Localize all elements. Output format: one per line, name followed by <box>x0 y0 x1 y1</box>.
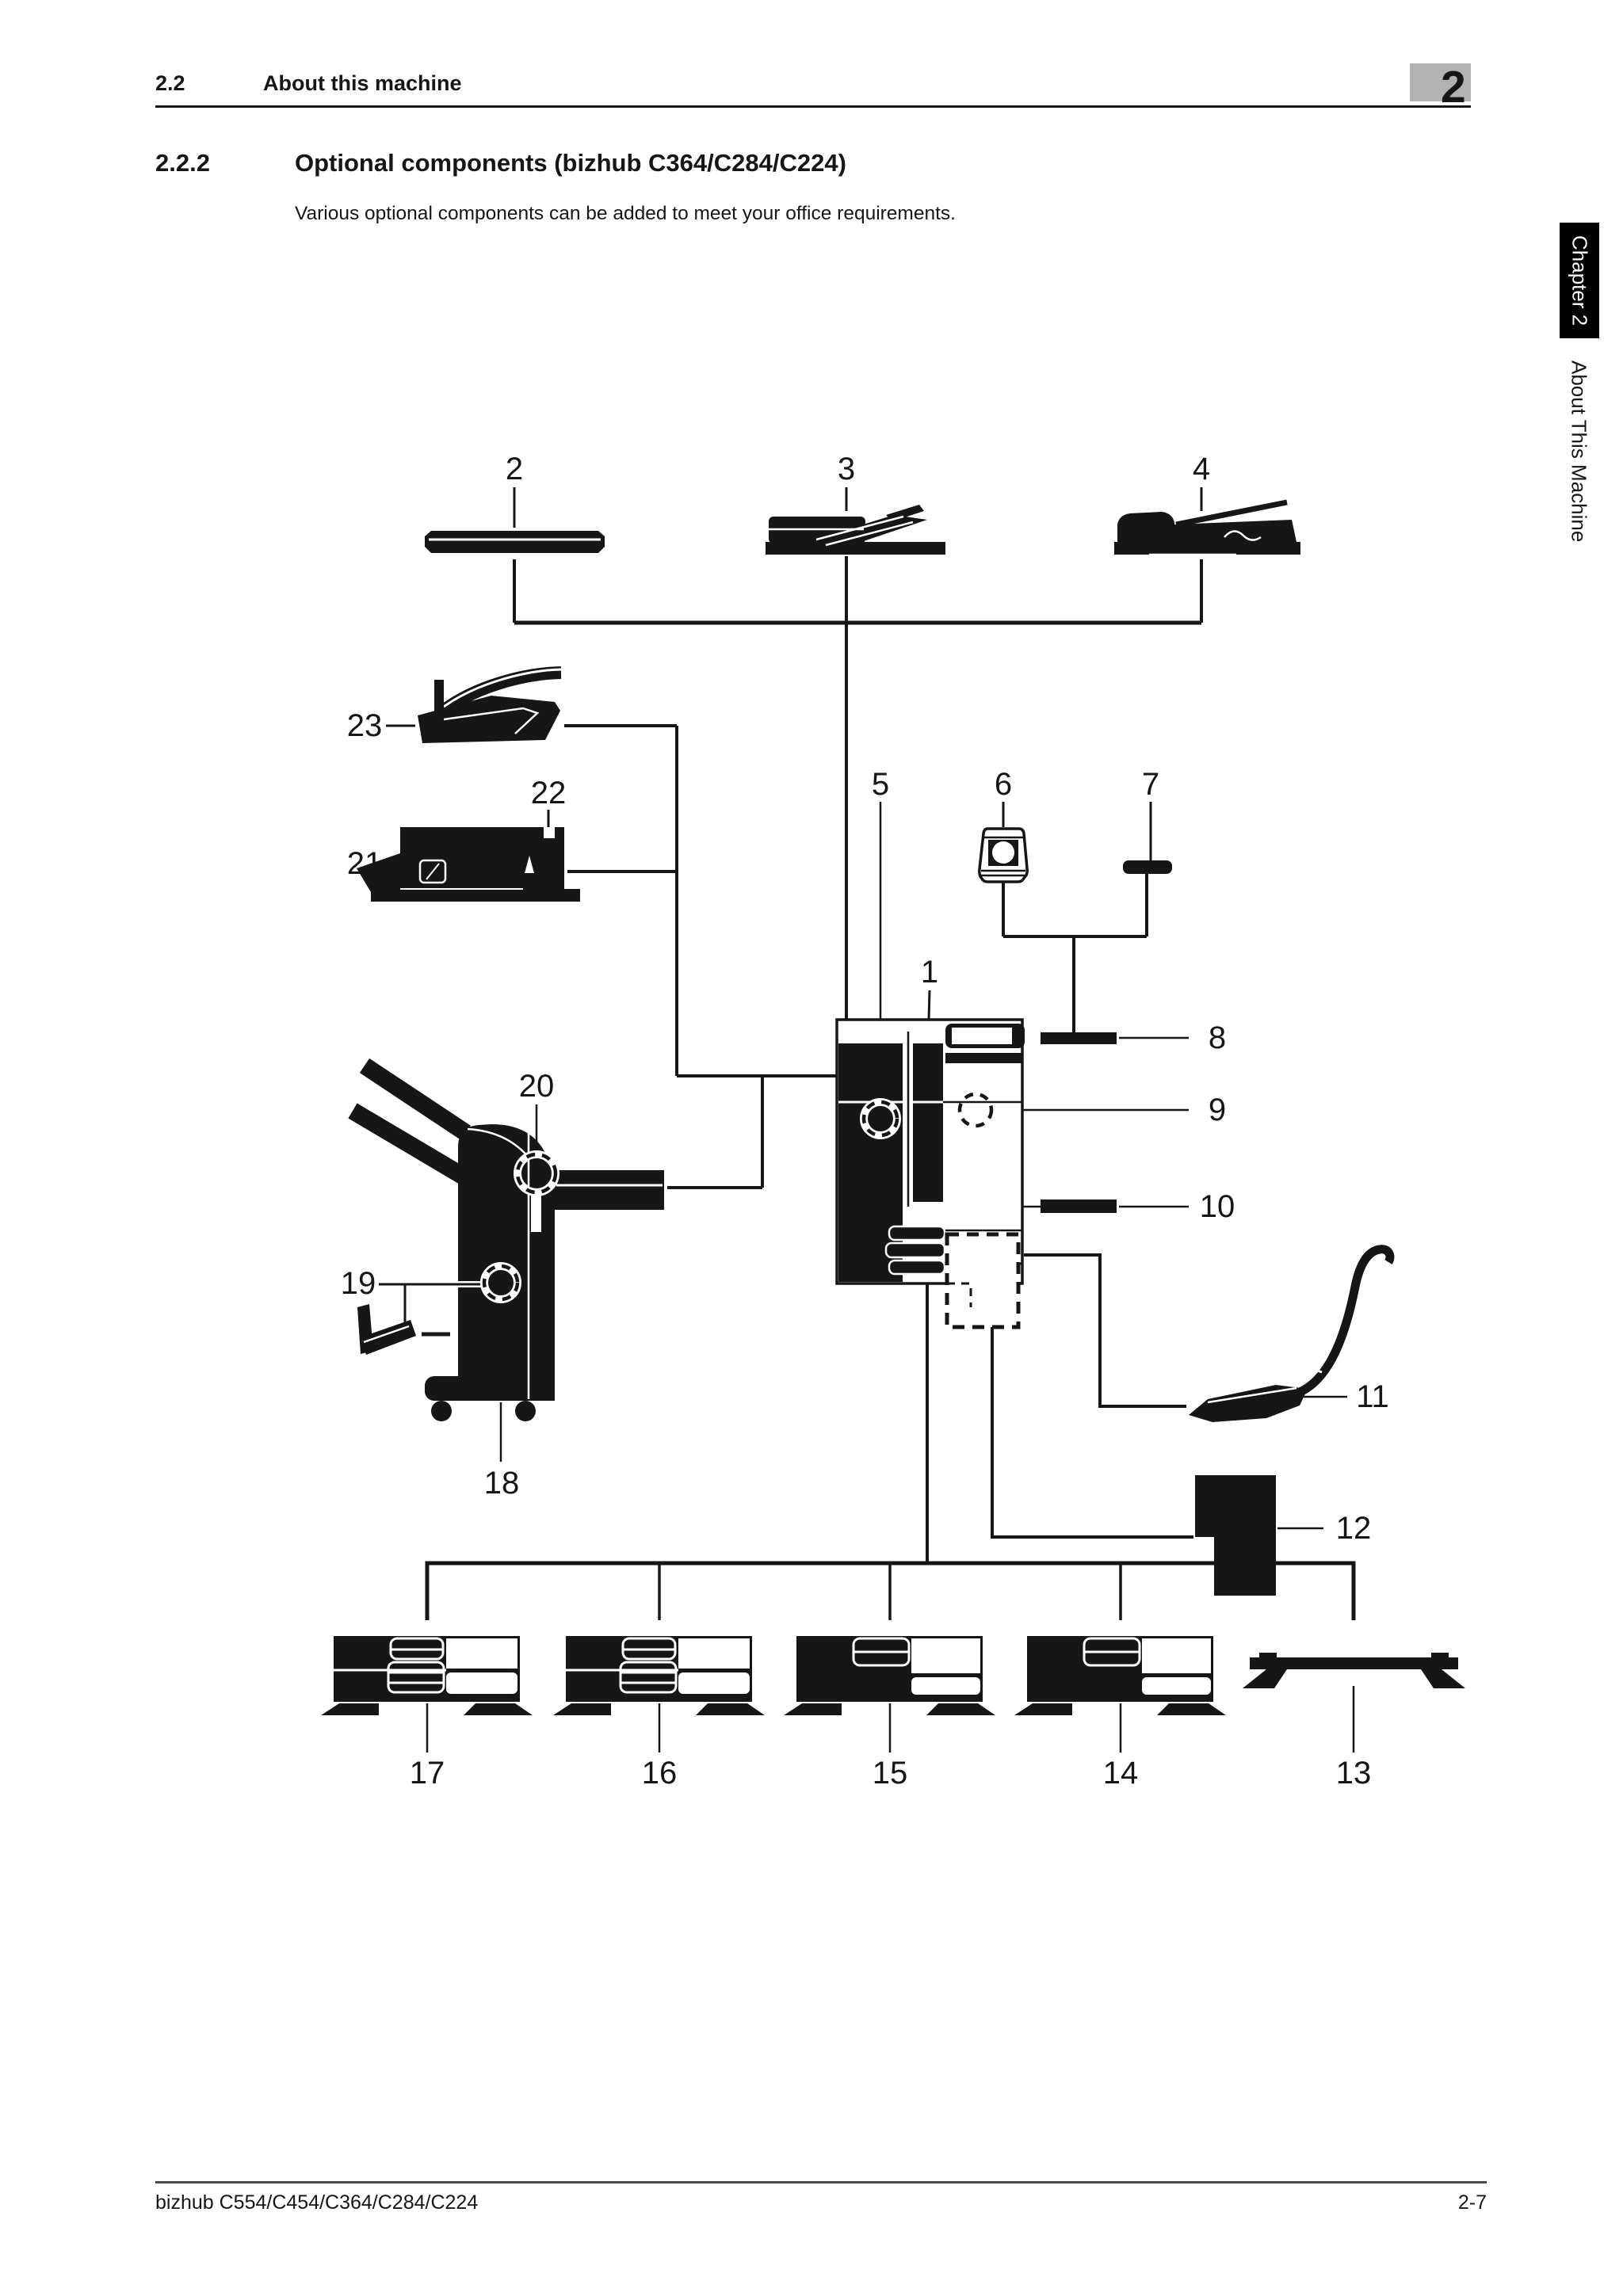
callout-number-3: 3 <box>838 452 855 486</box>
callout-number-9: 9 <box>1209 1093 1226 1127</box>
callout-number-21: 21 <box>347 846 383 881</box>
callout-number-20: 20 <box>519 1069 555 1104</box>
attachment-box-illustration <box>1195 1475 1276 1596</box>
reverse-adf-illustration <box>766 505 945 555</box>
keypad-illustration <box>1041 1199 1117 1213</box>
floor-finisher-illustration <box>353 1066 664 1421</box>
callout-number-19: 19 <box>341 1266 376 1301</box>
callout-number-11: 11 <box>1356 1379 1389 1414</box>
callout-number-6: 6 <box>995 767 1012 802</box>
callout-number-2: 2 <box>506 452 523 486</box>
components-diagram: 1234567891011121314151617181920212223 <box>0 0 1623 2296</box>
original-cover-illustration <box>425 531 605 553</box>
callout-number-17: 17 <box>410 1756 445 1791</box>
callout-number-15: 15 <box>873 1756 908 1791</box>
inner-finisher-illustration <box>357 827 580 902</box>
callout-number-4: 4 <box>1193 452 1210 486</box>
callout-number-23: 23 <box>347 708 383 743</box>
dual-scan-adf-illustration <box>1114 502 1300 555</box>
callout-number-10: 10 <box>1200 1189 1235 1224</box>
callout-number-1: 1 <box>921 955 938 990</box>
working-table-illustration <box>1041 1032 1117 1044</box>
callout-number-16: 16 <box>642 1756 678 1791</box>
output-tray-unit-illustration <box>418 669 561 743</box>
footer-page-number: 2-7 <box>1249 2191 1487 2214</box>
callout-number-12: 12 <box>1336 1511 1372 1546</box>
callout-number-14: 14 <box>1103 1756 1139 1791</box>
footer-model-list: bizhub C554/C454/C364/C284/C224 <box>155 2191 478 2214</box>
callout-number-5: 5 <box>872 767 889 802</box>
callout-number-13: 13 <box>1336 1756 1372 1791</box>
mount-kit-illustration <box>1123 860 1172 874</box>
callout-number-18: 18 <box>484 1466 520 1501</box>
footer-rule <box>155 2181 1487 2183</box>
manual-page: 2.2 About this machine 2 Chapter 2 About… <box>0 0 1623 2296</box>
callout-number-22: 22 <box>531 776 567 810</box>
callout-number-8: 8 <box>1209 1020 1226 1055</box>
callout-number-7: 7 <box>1142 767 1159 802</box>
authentication-unit-illustration <box>980 829 1027 882</box>
desk-illustration <box>1243 1653 1465 1688</box>
